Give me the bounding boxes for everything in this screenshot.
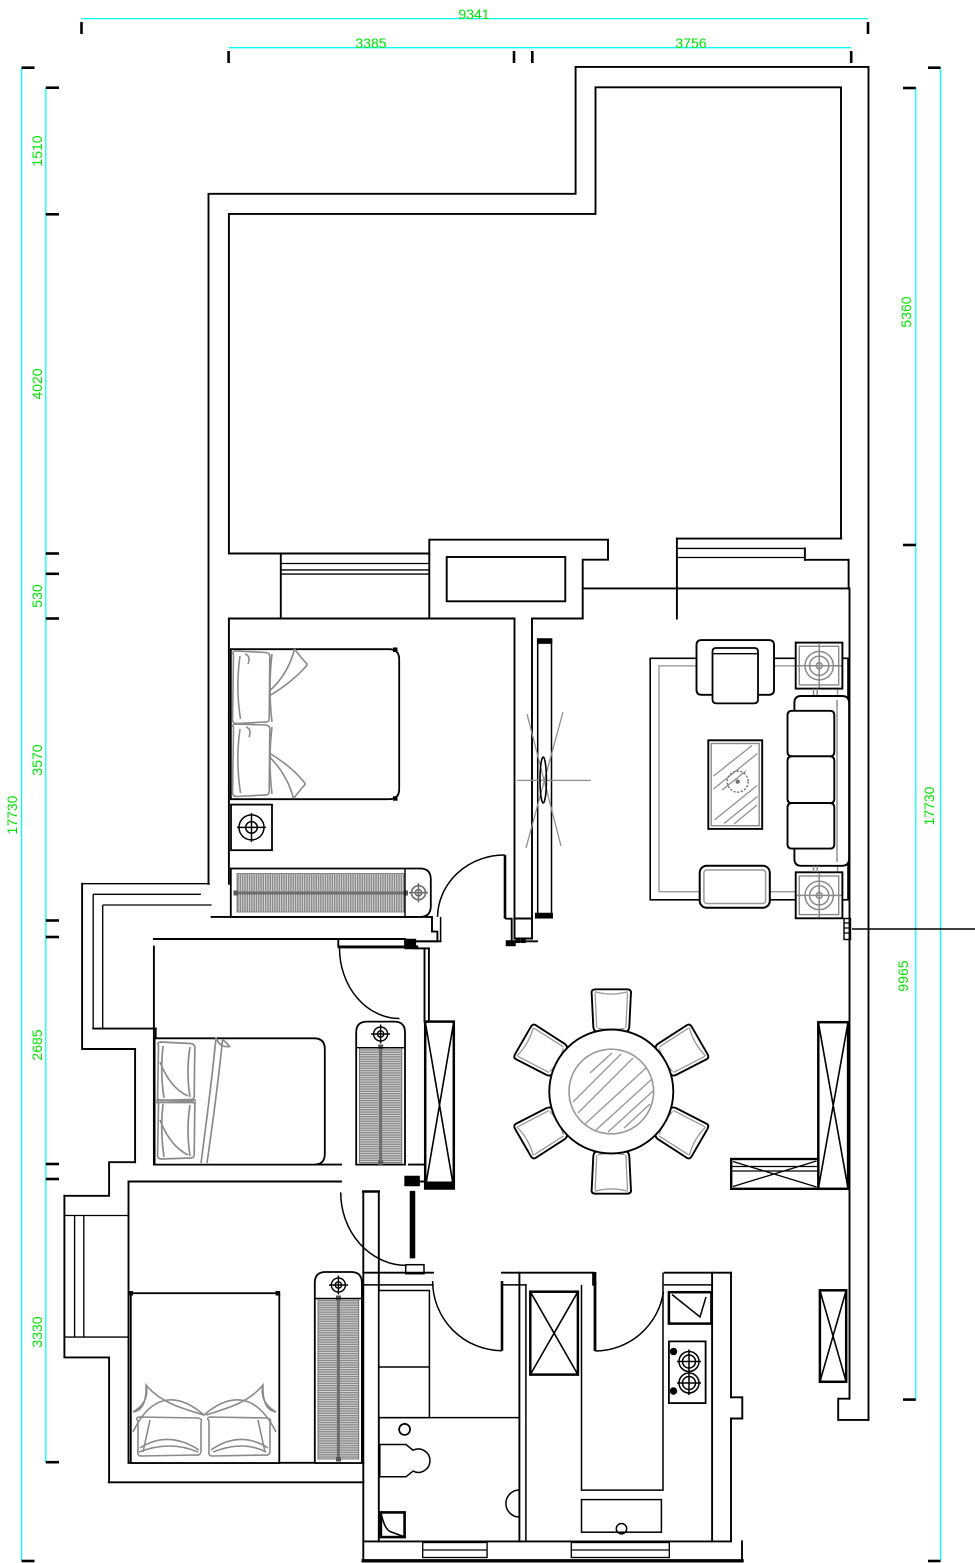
svg-text:9341: 9341 — [458, 6, 489, 22]
svg-text:3385: 3385 — [355, 35, 386, 51]
svg-text:3570: 3570 — [29, 744, 45, 775]
svg-text:530: 530 — [29, 584, 45, 608]
svg-text:9965: 9965 — [895, 960, 911, 991]
svg-text:4020: 4020 — [29, 368, 45, 399]
svg-text:17730: 17730 — [921, 786, 937, 825]
svg-text:3756: 3756 — [675, 35, 706, 51]
svg-text:2685: 2685 — [29, 1029, 45, 1060]
svg-text:5360: 5360 — [898, 296, 914, 327]
svg-text:3330: 3330 — [29, 1316, 45, 1347]
svg-text:17730: 17730 — [4, 795, 20, 834]
svg-text:1510: 1510 — [29, 135, 45, 166]
